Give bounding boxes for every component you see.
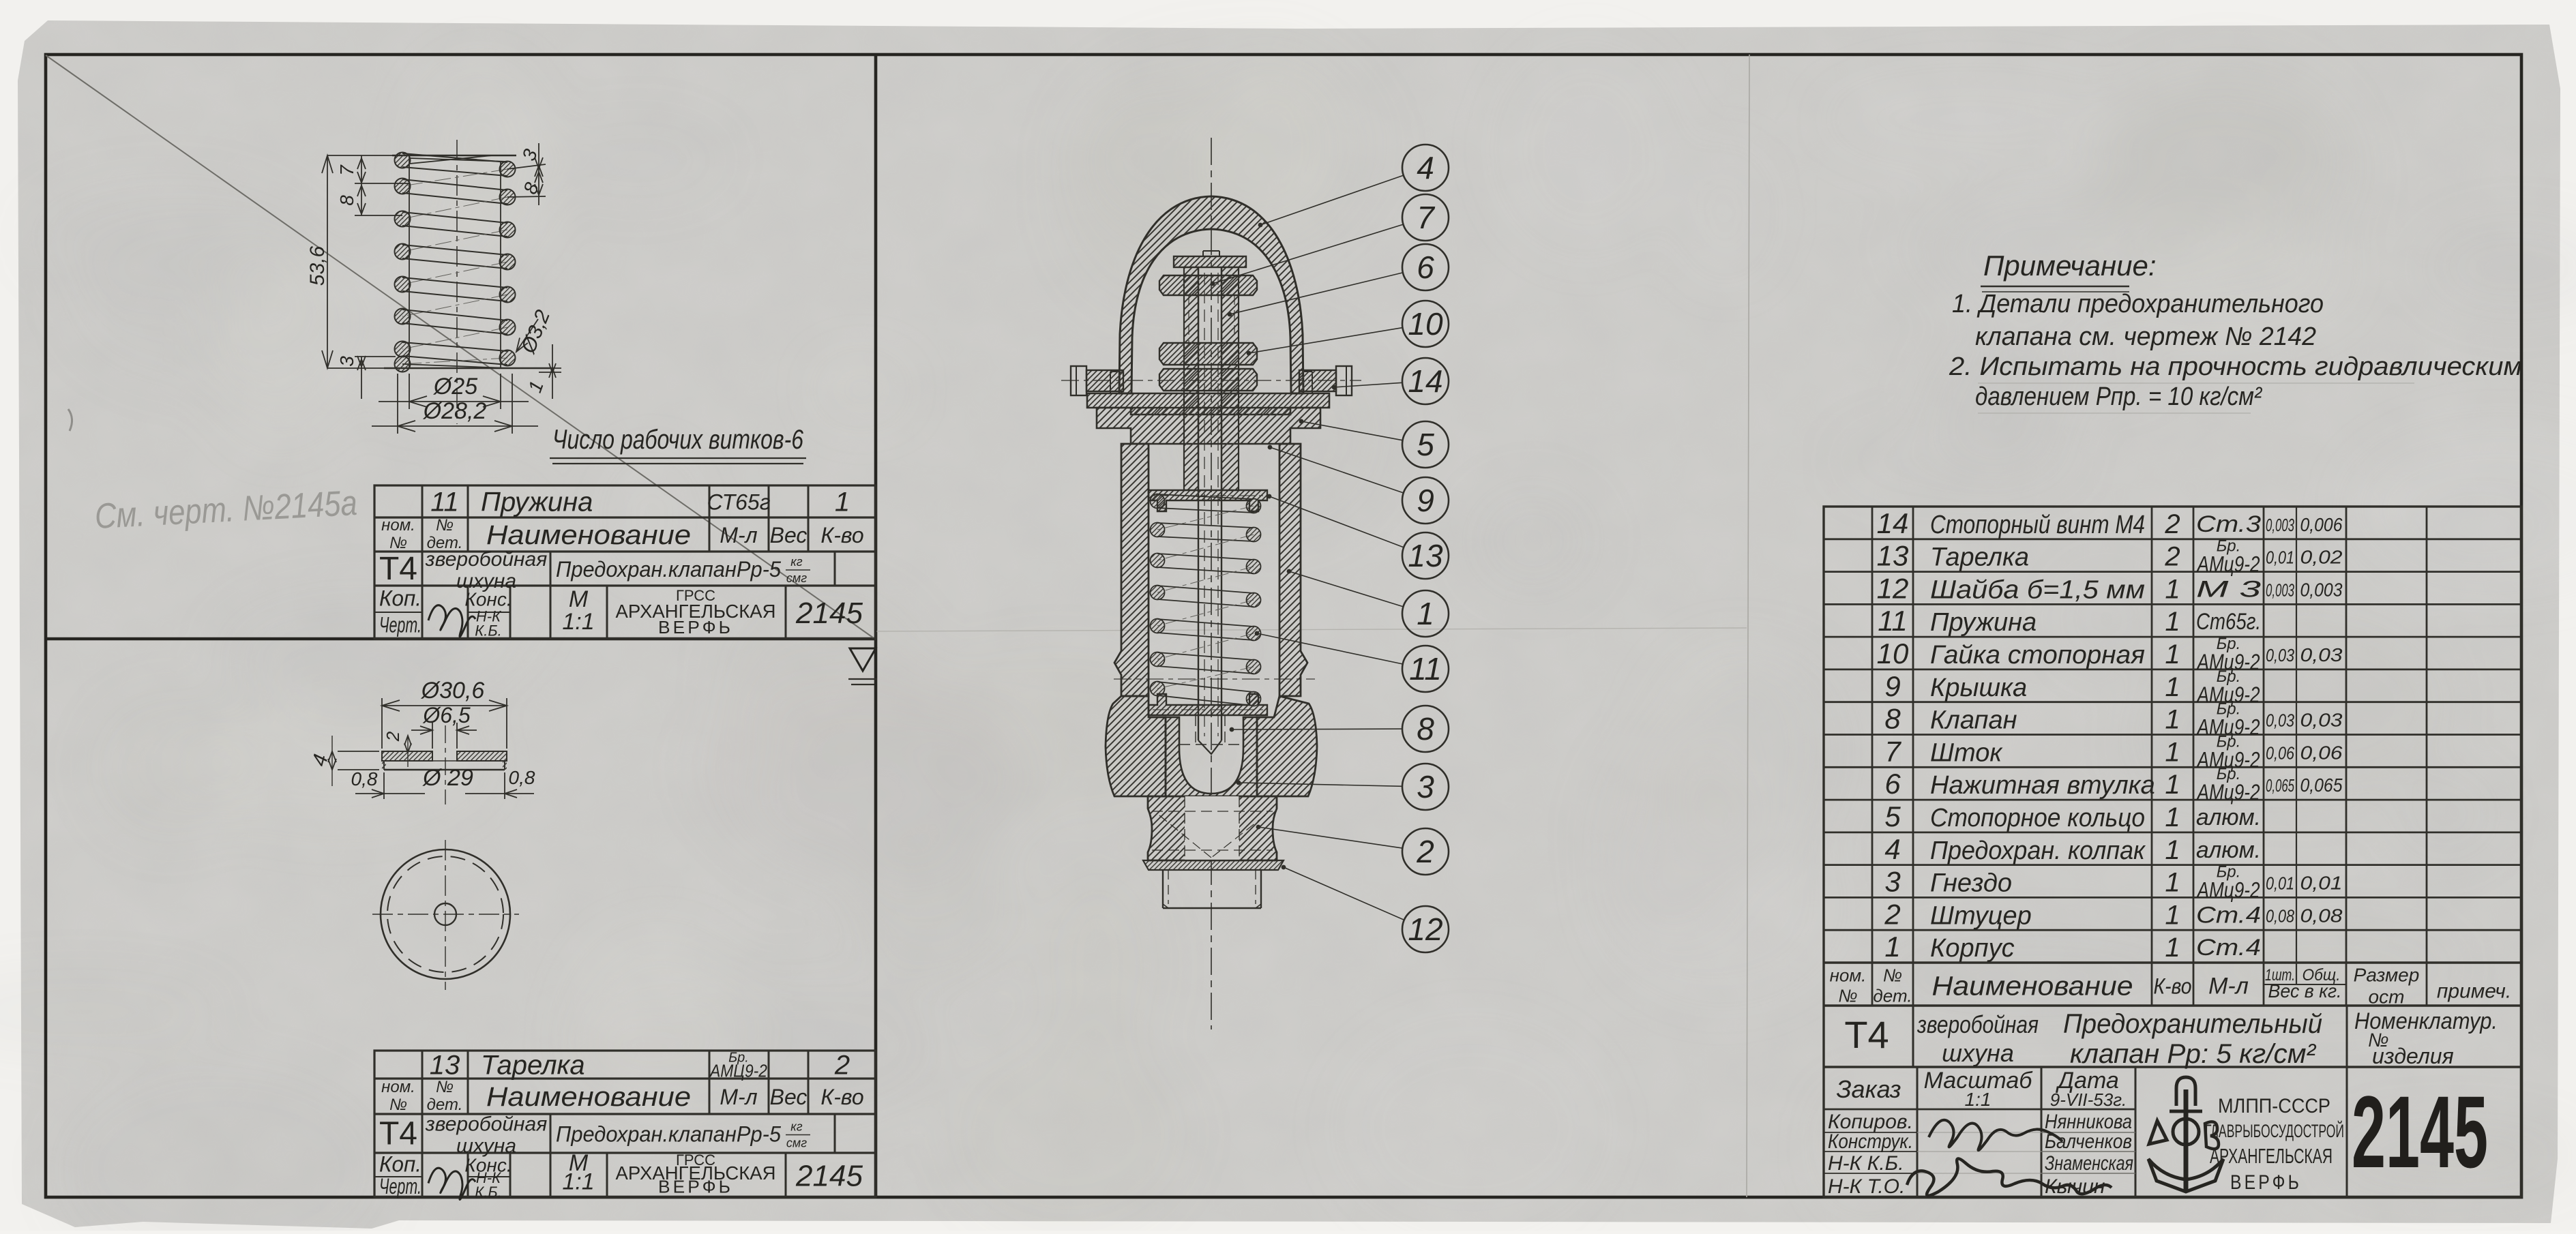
svg-text:0,003: 0,003 (2266, 515, 2294, 535)
svg-text:0,02: 0,02 (2300, 547, 2343, 568)
svg-text:11: 11 (1409, 651, 1442, 687)
svg-text:К.Б.: К.Б. (475, 622, 502, 639)
svg-text:1: 1 (2165, 835, 2180, 865)
svg-text:0,08: 0,08 (2300, 905, 2343, 926)
svg-text:9-VII-53г.: 9-VII-53г. (2050, 1089, 2127, 1110)
svg-text:примеч.: примеч. (2437, 980, 2511, 1003)
svg-text:7: 7 (1417, 200, 1435, 235)
svg-text:№: № (436, 1078, 454, 1096)
svg-text:53,6: 53,6 (306, 245, 329, 286)
svg-text:ВЕРФЬ: ВЕРФЬ (658, 1177, 733, 1197)
svg-text:0,01: 0,01 (2300, 873, 2343, 894)
svg-text:2145: 2145 (2352, 1074, 2488, 1189)
svg-text:Гайка стопорная: Гайка стопорная (1930, 641, 2145, 669)
svg-text:давлением Pпр. = 10 кг/см²: давлением Pпр. = 10 кг/см² (1975, 382, 2262, 411)
svg-text:13: 13 (1877, 540, 1909, 572)
svg-text:ном.: ном. (381, 516, 415, 535)
svg-text:АМц9-2: АМц9-2 (2196, 780, 2260, 804)
svg-text:2: 2 (1884, 898, 1900, 930)
svg-text:Черт.: Черт. (379, 1174, 421, 1199)
svg-text:ном.: ном. (381, 1078, 415, 1096)
svg-text:Ст.4: Ст.4 (2196, 935, 2261, 961)
svg-text:Конс.: Конс. (464, 589, 512, 610)
svg-text:ВЕРФЬ: ВЕРФЬ (2230, 1171, 2302, 1194)
svg-text:5: 5 (1884, 800, 1901, 832)
svg-text:12: 12 (1877, 573, 1909, 605)
svg-text:3: 3 (1884, 866, 1900, 898)
svg-text:№: № (1838, 986, 1857, 1006)
svg-text:Вес: Вес (770, 523, 808, 547)
svg-text:Наименование: Наименование (1932, 972, 2133, 1002)
svg-text:2: 2 (2164, 509, 2180, 539)
svg-text:0,03: 0,03 (2300, 644, 2343, 665)
svg-text:7: 7 (1884, 735, 1901, 767)
svg-text:изделия: изделия (2372, 1044, 2454, 1068)
svg-text:11: 11 (430, 487, 459, 517)
svg-text:Т4: Т4 (379, 551, 417, 587)
svg-text:К.Б.: К.Б. (475, 1184, 502, 1201)
svg-text:Ø6,5: Ø6,5 (422, 703, 471, 727)
svg-text:0,8: 0,8 (351, 768, 378, 789)
svg-text:Ø30,6: Ø30,6 (421, 678, 485, 704)
svg-text:№: № (389, 534, 407, 552)
svg-text:Размер: Размер (2354, 965, 2420, 986)
svg-text:Т4: Т4 (1844, 1013, 1889, 1056)
svg-text:Тарелка: Тарелка (481, 1051, 585, 1081)
svg-text:2145: 2145 (795, 1160, 863, 1193)
svg-text:9: 9 (1417, 483, 1434, 518)
svg-text:1:1: 1:1 (562, 609, 594, 635)
svg-text:1: 1 (2165, 737, 2180, 767)
svg-text:2145: 2145 (795, 597, 863, 630)
svg-text:0,03: 0,03 (2300, 710, 2343, 731)
svg-text:0,08: 0,08 (2266, 905, 2294, 926)
svg-text:Коп.: Коп. (379, 586, 421, 611)
svg-text:№: № (1883, 965, 1902, 986)
svg-text:№: № (436, 516, 454, 535)
svg-text:8: 8 (1884, 703, 1901, 735)
svg-text:№: № (389, 1096, 407, 1114)
svg-text:Шток: Шток (1930, 738, 2003, 767)
svg-text:К-во: К-во (820, 1085, 863, 1109)
svg-text:1. Детали предохранительного: 1. Детали предохранительного (1952, 290, 2324, 318)
svg-text:дет.: дет. (427, 1096, 463, 1114)
svg-text:Нажитная втулка: Нажитная втулка (1930, 771, 2155, 800)
svg-text:0,065: 0,065 (2266, 775, 2294, 796)
svg-text:0,01: 0,01 (2266, 873, 2294, 894)
svg-text:Ст65г.: Ст65г. (2196, 609, 2261, 635)
svg-text:Предохран.клапанРр-5: Предохран.клапанРр-5 (556, 557, 781, 582)
svg-text:0,065: 0,065 (2300, 774, 2343, 796)
svg-text:2: 2 (1416, 834, 1434, 869)
svg-text:Коп.: Коп. (379, 1152, 421, 1177)
svg-text:Черт.: Черт. (379, 613, 421, 637)
svg-text:ВЕРФЬ: ВЕРФЬ (658, 617, 733, 637)
svg-text:смг: смг (786, 571, 807, 585)
svg-text:8: 8 (1417, 711, 1434, 747)
svg-text:зверобойная: зверобойная (1916, 1010, 2039, 1038)
svg-text:Ø25: Ø25 (433, 374, 477, 400)
svg-text:4: 4 (1884, 833, 1900, 865)
svg-text:13: 13 (430, 1051, 460, 1081)
svg-text:АМц9-2: АМц9-2 (2196, 878, 2260, 903)
svg-text:К-во: К-во (2154, 974, 2192, 999)
svg-text:1:1: 1:1 (1965, 1089, 1992, 1110)
svg-text:Корпус: Корпус (1930, 934, 2015, 963)
svg-text:Предохранительный: Предохранительный (2063, 1009, 2322, 1039)
svg-text:1:1: 1:1 (562, 1169, 594, 1194)
svg-text:Стопорное кольцо: Стопорное кольцо (1930, 804, 2145, 832)
svg-text:М 3: М 3 (2196, 577, 2261, 603)
svg-text:Вес в кг.: Вес в кг. (2268, 980, 2342, 1002)
svg-text:1: 1 (2165, 639, 2180, 669)
svg-text:Н-К К.Б.: Н-К К.Б. (1828, 1152, 1904, 1175)
svg-text:Балченков: Балченков (2045, 1130, 2132, 1153)
svg-text:1: 1 (2165, 868, 2180, 898)
svg-text:1: 1 (1417, 596, 1434, 631)
svg-text:14: 14 (1877, 507, 1909, 539)
svg-text:14: 14 (1408, 363, 1442, 399)
svg-text:кг: кг (790, 1120, 802, 1134)
svg-text:11: 11 (1878, 605, 1908, 637)
svg-text:1: 1 (2165, 607, 2180, 637)
svg-text:Шайба б=1,5 мм: Шайба б=1,5 мм (1930, 576, 2145, 605)
svg-text:6: 6 (1417, 250, 1434, 285)
svg-text:7: 7 (336, 164, 357, 176)
svg-text:клапана см. чертеж № 2142: клапана см. чертеж № 2142 (1975, 322, 2316, 351)
svg-text:Наименование: Наименование (486, 1082, 691, 1112)
svg-text:10: 10 (1877, 637, 1909, 669)
svg-text:Предохран. колпак: Предохран. колпак (1930, 837, 2146, 865)
svg-text:АМц9-2: АМц9-2 (2196, 552, 2260, 577)
svg-text:1: 1 (2165, 900, 2180, 930)
svg-text:МЛПП-СССР: МЛПП-СССР (2218, 1095, 2330, 1117)
svg-text:10: 10 (1408, 306, 1443, 342)
svg-text:12: 12 (1408, 912, 1442, 947)
svg-text:Предохран.клапанРр-5: Предохран.клапанРр-5 (556, 1122, 781, 1147)
svg-text:0,03: 0,03 (2266, 645, 2294, 665)
svg-text:2: 2 (834, 1051, 850, 1081)
svg-text:М-л: М-л (720, 1085, 757, 1109)
svg-text:1: 1 (2165, 672, 2180, 702)
svg-text:Клапан: Клапан (1930, 706, 2017, 735)
svg-text:1: 1 (835, 487, 850, 517)
svg-text:1: 1 (2165, 575, 2180, 605)
svg-text:1: 1 (2165, 705, 2180, 735)
svg-text:Ст.3: Ст.3 (2196, 511, 2261, 537)
svg-text:Пружина: Пружина (481, 487, 593, 517)
svg-text:зверобойная: зверобойная (425, 548, 547, 571)
svg-text:АРХАНГЕЛЬСКАЯ: АРХАНГЕЛЬСКАЯ (2210, 1144, 2333, 1168)
svg-text:0,03: 0,03 (2266, 710, 2294, 731)
svg-text:3: 3 (336, 356, 357, 367)
svg-text:1: 1 (2165, 933, 2180, 963)
svg-text:0,006: 0,006 (2300, 514, 2343, 535)
svg-text:Штуцер: Штуцер (1930, 901, 2032, 930)
svg-text:алюм.: алюм. (2196, 804, 2261, 830)
svg-text:Конструк.: Конструк. (1828, 1130, 1913, 1153)
svg-text:Знаменская: Знаменская (2045, 1152, 2133, 1175)
svg-text:М-л: М-л (720, 523, 757, 547)
svg-text:Стопорный винт М4: Стопорный винт М4 (1930, 511, 2145, 539)
svg-text:кг: кг (790, 555, 802, 569)
svg-text:6: 6 (1884, 768, 1901, 800)
svg-text:Примечание:: Примечание: (1983, 250, 2157, 282)
svg-text:Н-К Т.О.: Н-К Т.О. (1828, 1175, 1905, 1198)
svg-text:Крышка: Крышка (1930, 674, 2027, 702)
svg-text:Заказ: Заказ (1836, 1075, 1901, 1103)
svg-text:М-л: М-л (2208, 974, 2249, 999)
svg-text:Вес: Вес (770, 1085, 808, 1109)
svg-text:К-во: К-во (820, 523, 863, 547)
svg-text:Ø28,2: Ø28,2 (423, 398, 487, 424)
svg-text:2. Испытать на прочность ги: 2. Испытать на прочность гидравлическим (1949, 352, 2522, 381)
svg-text:1: 1 (2165, 770, 2180, 800)
svg-text:Ø 29: Ø 29 (422, 765, 473, 791)
svg-text:0,06: 0,06 (2300, 742, 2343, 763)
svg-text:Число рабочих витков-6: Число рабочих витков-6 (552, 425, 804, 455)
svg-text:2: 2 (2164, 542, 2180, 572)
svg-text:0,01: 0,01 (2266, 547, 2294, 568)
svg-text:3: 3 (1417, 769, 1434, 804)
svg-text:ГЛАВРЫБОСУДОСТРОЙ: ГЛАВРЫБОСУДОСТРОЙ (2205, 1120, 2344, 1141)
svg-text:8: 8 (336, 195, 357, 206)
svg-text:Гнездо: Гнездо (1930, 869, 2012, 898)
svg-text:алюм.: алюм. (2196, 837, 2261, 863)
svg-text:Тарелка: Тарелка (1930, 543, 2029, 572)
svg-text:Пружина: Пружина (1930, 608, 2037, 637)
svg-text:зверобойная: зверобойная (425, 1113, 547, 1136)
svg-text:13: 13 (1408, 538, 1443, 573)
svg-text:2: 2 (383, 731, 403, 742)
svg-text:0,8: 0,8 (509, 767, 535, 788)
svg-text:смг: смг (786, 1137, 807, 1150)
svg-text:Ст.4: Ст.4 (2196, 902, 2261, 928)
svg-text:1: 1 (2165, 802, 2180, 832)
svg-text:клапан Pр: 5 кг/см²: клапан Pр: 5 кг/см² (2070, 1039, 2317, 1069)
svg-text:Т4: Т4 (379, 1116, 417, 1152)
svg-text:1: 1 (1884, 931, 1900, 963)
svg-text:шхуна: шхуна (1942, 1039, 2014, 1067)
svg-text:ном.: ном. (1830, 965, 1867, 986)
svg-text:дет.: дет. (1873, 986, 1912, 1006)
svg-text:4: 4 (1417, 150, 1434, 185)
svg-text:5: 5 (1417, 427, 1434, 462)
svg-text:ост: ост (2369, 987, 2405, 1008)
svg-text:0,06: 0,06 (2266, 742, 2294, 763)
svg-text:Наименование: Наименование (486, 520, 691, 550)
svg-text:0,003: 0,003 (2300, 580, 2343, 601)
svg-text:АМЦ9-2: АМЦ9-2 (709, 1061, 767, 1081)
svg-text:9: 9 (1884, 670, 1900, 702)
svg-text:0,003: 0,003 (2266, 580, 2294, 601)
svg-text:СТ65г: СТ65г (707, 490, 771, 515)
